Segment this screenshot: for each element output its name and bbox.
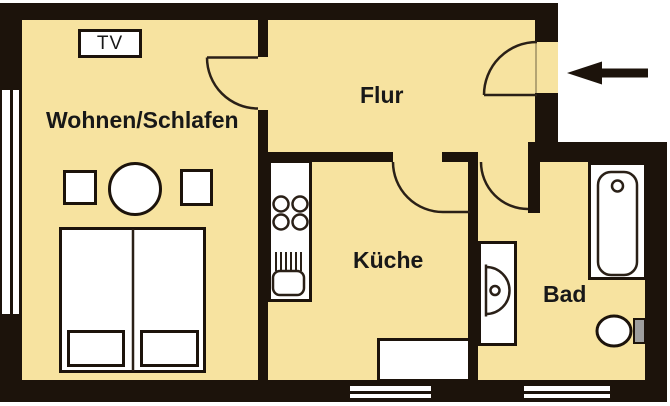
window-divider xyxy=(524,391,610,394)
washbasin-vanity xyxy=(478,241,517,346)
room-label-living: Wohnen/Schlafen xyxy=(46,108,239,132)
entrance-jamb-line xyxy=(535,42,537,93)
tv-label: TV xyxy=(97,33,123,55)
window-bath-bottom xyxy=(522,384,612,400)
room-label-kitchen: Küche xyxy=(353,248,423,272)
bed-pillow-left xyxy=(67,330,125,367)
tv-cabinet: TV xyxy=(78,29,142,58)
wall-bath-door-stub xyxy=(528,142,540,213)
floor-plan: TV Wohnen/Schlafen Flur Küche Bad xyxy=(0,0,670,406)
wall-entrance-upper xyxy=(535,20,558,42)
entrance-arrow-icon xyxy=(567,62,648,85)
chair-right xyxy=(180,169,213,206)
kitchen-table xyxy=(377,338,471,382)
wall-living-hall-upper xyxy=(258,20,268,57)
window-living-left xyxy=(0,88,21,316)
kitchen-counter xyxy=(268,160,312,302)
round-dining-table xyxy=(108,162,162,216)
wall-hall-kitchen-b xyxy=(442,152,478,162)
room-label-hall: Flur xyxy=(360,83,403,107)
wall-top xyxy=(0,3,558,20)
wall-living-kitchen xyxy=(258,110,268,380)
window-kitchen-bottom xyxy=(348,384,433,400)
wall-entrance-lower xyxy=(535,93,558,142)
room-label-bath: Bad xyxy=(543,282,586,306)
window-divider xyxy=(10,90,13,314)
bed-pillow-right xyxy=(140,330,199,367)
wall-right xyxy=(645,142,667,402)
bathtub xyxy=(588,162,647,280)
window-divider xyxy=(350,391,431,394)
chair-left xyxy=(63,170,97,205)
wall-bath-top xyxy=(537,142,667,162)
